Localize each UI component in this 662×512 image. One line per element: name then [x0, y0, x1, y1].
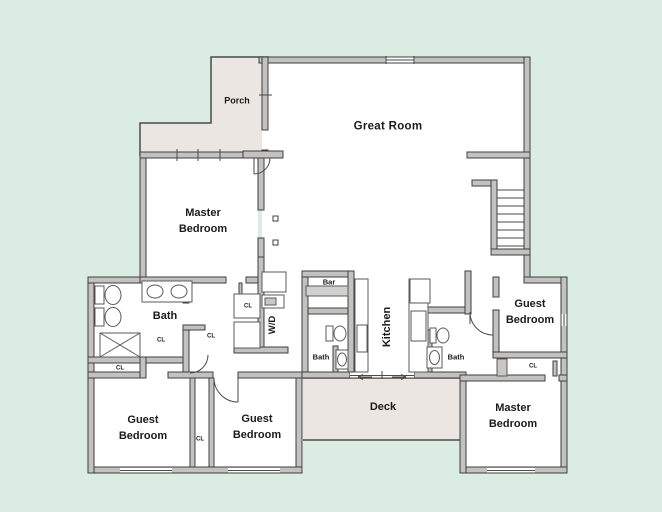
shower-icon [100, 333, 140, 357]
closet-shelf [497, 359, 507, 376]
bar-counter [306, 286, 348, 296]
sink-icon [336, 350, 348, 369]
sink-icon [427, 347, 442, 368]
toilet-icon [95, 308, 121, 327]
toilet-icon [326, 326, 346, 341]
closet-box [234, 322, 260, 348]
deck-area [302, 378, 462, 440]
toilet-icon [95, 286, 121, 305]
washer-dryer-icon [262, 295, 284, 308]
floor-plan: Porch Great Room Master Bedroom Bath W/D… [0, 0, 662, 512]
floor-plan-drawing [0, 0, 662, 512]
closet-box [262, 272, 286, 292]
vanity-double-sink [142, 281, 192, 302]
toilet-icon [430, 328, 449, 343]
closet-box [234, 294, 260, 318]
pantry-cabinet [355, 279, 368, 372]
porch-area [140, 57, 268, 155]
